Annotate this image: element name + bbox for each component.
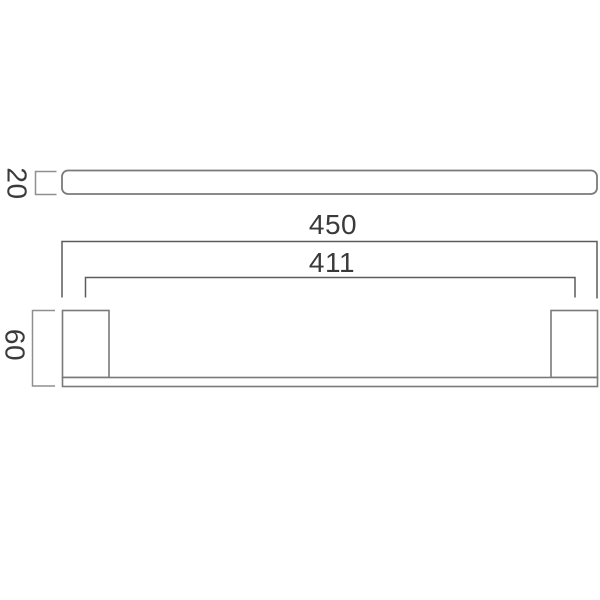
height-dimension-label: 60 <box>0 329 31 361</box>
top-view: 20 <box>2 167 598 199</box>
depth-dimension-label: 20 <box>2 167 33 199</box>
overall-width-dimension-label: 450 <box>309 209 357 240</box>
left-wall-bracket-outline <box>63 311 110 378</box>
fixing-centres-dimension-label: 411 <box>309 247 355 278</box>
front-view: 60 <box>0 311 598 387</box>
rail-bar-outline <box>63 378 598 387</box>
technical-drawing: 20 450 411 60 <box>0 0 600 600</box>
depth-dimension-bracket <box>36 172 57 195</box>
drawing-canvas: 20 450 411 60 <box>0 0 600 600</box>
height-dimension-bracket <box>33 311 56 387</box>
width-dimensions: 450 411 <box>62 209 597 299</box>
rail-profile-outline <box>62 171 597 195</box>
right-wall-bracket-outline <box>551 311 598 378</box>
fixing-centres-dimension-line <box>86 278 576 298</box>
